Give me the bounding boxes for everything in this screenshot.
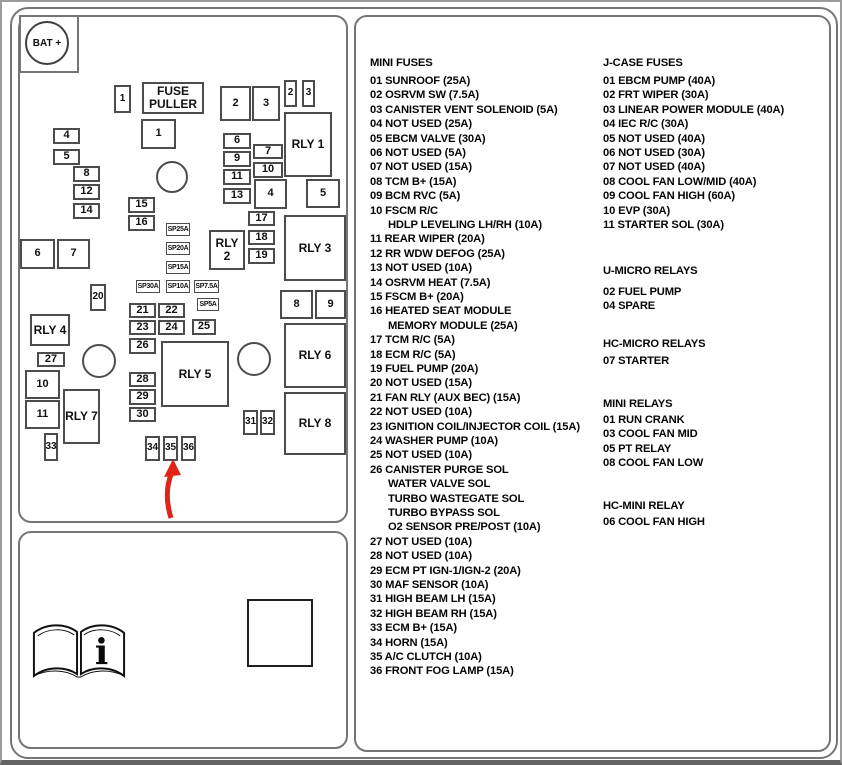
legend-item-mini-fuses: 19 FUEL PUMP (20A) xyxy=(370,363,478,375)
fuse-box-16-22: 16 xyxy=(128,215,155,231)
legend-item-mini-fuses: 16 HEATED SEAT MODULE xyxy=(370,305,511,317)
legend-item-mini-fuses: 25 NOT USED (10A) xyxy=(370,449,472,461)
fuse-box-14-12: 14 xyxy=(73,203,100,219)
red-arrow-icon xyxy=(152,454,196,524)
fuse-box-6-13: 6 xyxy=(223,133,251,149)
fuse-box-27-39: 27 xyxy=(37,352,65,367)
fuse-box-3-6: 3 xyxy=(302,80,315,107)
legend-item-mini-fuses: 04 NOT USED (25A) xyxy=(370,118,472,130)
legend-item-mini-fuses: 03 CANISTER VENT SOLENOID (5A) xyxy=(370,104,558,116)
relay-box-rly-4: RLY 4 xyxy=(30,314,70,346)
fuse-box-1: 1 xyxy=(141,119,176,149)
legend-item-mini-relays: 08 COOL FAN LOW xyxy=(603,457,703,469)
fuse-box-11-17: 11 xyxy=(223,169,251,185)
legend-item-mini-fuses: 17 TCM R/C (5A) xyxy=(370,334,455,346)
legend-item-mini-fuses: 24 WASHER PUMP (10A) xyxy=(370,435,498,447)
fuse-box-11-41: 11 xyxy=(25,400,60,429)
relay-box-rly-1: RLY 1 xyxy=(284,112,332,177)
legend-item-mini-fuses: 09 BCM RVC (5A) xyxy=(370,190,460,202)
legend-item-mini-fuses: 29 ECM PT IGN-1/IGN-2 (20A) xyxy=(370,565,521,577)
fuse-box-29-51: 29 xyxy=(129,389,156,405)
fuse-box-10-16: 10 xyxy=(253,162,283,178)
legend-item-mini-relays: 03 COOL FAN MID xyxy=(603,428,698,440)
legend-item-mini-fuses: TURBO BYPASS SOL xyxy=(388,507,500,519)
fuse-box-9-15: 9 xyxy=(223,151,251,167)
legend-item-mini-fuses: 28 NOT USED (10A) xyxy=(370,550,472,562)
legend-section-title-hc-micro-relays: HC-MICRO RELAYS xyxy=(603,338,705,350)
legend-item-j-case-fuses: 05 NOT USED (40A) xyxy=(603,133,705,145)
legend-item-mini-fuses: 12 RR WDW DEFOG (25A) xyxy=(370,248,505,260)
legend-item-mini-fuses: 06 NOT USED (5A) xyxy=(370,147,466,159)
fuse-box-20-37: 20 xyxy=(90,284,106,311)
fuse-box-18-24: 18 xyxy=(248,230,275,245)
legend-item-j-case-fuses: 11 STARTER SOL (30A) xyxy=(603,219,724,231)
fuse-box-4-19: 4 xyxy=(254,179,287,209)
legend-item-mini-fuses: O2 SENSOR PRE/POST (10A) xyxy=(388,521,540,533)
legend-section-title-mini-fuses: MINI FUSES xyxy=(370,57,433,69)
legend-item-mini-fuses: 01 SUNROOF (25A) xyxy=(370,75,470,87)
legend-item-mini-fuses: TURBO WASTEGATE SOL xyxy=(388,493,524,505)
fuse-box-8-54: 8 xyxy=(280,290,313,319)
fuse-box-9-55: 9 xyxy=(315,290,346,319)
fuse-box-4-8: 4 xyxy=(53,128,80,144)
relay-box-rly-6: RLY 6 xyxy=(284,323,346,388)
manual-page: BAT + 1FUSE PULLER12323RLY 1458121467910… xyxy=(0,0,842,765)
legend-item-mini-fuses: 31 HIGH BEAM LH (15A) xyxy=(370,593,496,605)
fuse-box-26-49: 26 xyxy=(129,338,156,354)
legend-item-u-micro-relays: 04 SPARE xyxy=(603,300,655,312)
legend-item-mini-relays: 01 RUN CRANK xyxy=(603,414,685,426)
spare-fuse-sp5a: SP5A xyxy=(197,298,219,311)
battery-terminal-label: BAT + xyxy=(33,38,61,49)
mounting-hole xyxy=(156,161,188,193)
legend-item-mini-fuses: 05 EBCM VALVE (30A) xyxy=(370,133,485,145)
battery-terminal-icon: BAT + xyxy=(25,21,69,65)
relay-box-rly-5: RLY 5 xyxy=(161,341,229,407)
fuse-box-31-58: 31 xyxy=(243,410,258,435)
fuse-box-17-23: 17 xyxy=(248,211,275,226)
legend-item-j-case-fuses: 04 IEC R/C (30A) xyxy=(603,118,688,130)
legend-item-mini-fuses: 26 CANISTER PURGE SOL xyxy=(370,464,509,476)
svg-text:i: i xyxy=(95,632,108,673)
fuse-box-28-50: 28 xyxy=(129,372,156,387)
fuse-box-6-35: 6 xyxy=(20,239,55,269)
fuse-box-15-21: 15 xyxy=(128,197,155,213)
spare-fuse-sp20a: SP20A xyxy=(166,242,190,255)
legend-item-mini-fuses: 34 HORN (15A) xyxy=(370,637,448,649)
fuse-box-7-14: 7 xyxy=(253,144,283,159)
fuse-box-21-44: 21 xyxy=(129,303,156,318)
legend-item-j-case-fuses: 02 FRT WIPER (30A) xyxy=(603,89,708,101)
legend-item-mini-fuses: 30 MAF SENSOR (10A) xyxy=(370,579,488,591)
legend-item-mini-fuses: MEMORY MODULE (25A) xyxy=(388,320,518,332)
legend-item-mini-fuses: 07 NOT USED (15A) xyxy=(370,161,472,173)
spare-fuse-sp25a: SP25A xyxy=(166,223,190,236)
relay-box-rly-8: RLY 8 xyxy=(284,392,346,455)
legend-item-u-micro-relays: 02 FUEL PUMP xyxy=(603,286,681,298)
legend-item-mini-fuses: 36 FRONT FOG LAMP (15A) xyxy=(370,665,514,677)
legend-item-mini-fuses: 11 REAR WIPER (20A) xyxy=(370,233,485,245)
legend-item-mini-relays: 05 PT RELAY xyxy=(603,443,671,455)
legend-item-mini-fuses: 27 NOT USED (10A) xyxy=(370,536,472,548)
legend-item-mini-fuses: 18 ECM R/C (5A) xyxy=(370,349,455,361)
legend-item-j-case-fuses: 08 COOL FAN LOW/MID (40A) xyxy=(603,176,756,188)
fuse-box-2-3: 2 xyxy=(220,86,251,121)
spare-fuse-sp10a: SP10A xyxy=(166,280,190,293)
mounting-hole xyxy=(237,342,271,376)
fuse-box-23-46: 23 xyxy=(129,320,156,335)
legend-section-title-j-case-fuses: J-CASE FUSES xyxy=(603,57,683,69)
fuse-box-5-20: 5 xyxy=(306,179,340,208)
fuse-box-32-59: 32 xyxy=(260,410,275,435)
legend-item-j-case-fuses: 03 LINEAR POWER MODULE (40A) xyxy=(603,104,784,116)
legend-section-title-u-micro-relays: U-MICRO RELAYS xyxy=(603,265,697,277)
legend-item-j-case-fuses: 06 NOT USED (30A) xyxy=(603,147,705,159)
legend-item-mini-fuses: 21 FAN RLY (AUX BEC) (15A) xyxy=(370,392,520,404)
legend-item-j-case-fuses: 10 EVP (30A) xyxy=(603,205,670,217)
legend-square xyxy=(247,599,313,667)
legend-item-mini-fuses: 15 FSCM B+ (20A) xyxy=(370,291,464,303)
fuse-box-22-45: 22 xyxy=(158,303,185,318)
legend-section-title-hc-mini-relay: HC-MINI RELAY xyxy=(603,500,685,512)
legend-item-mini-fuses: 02 OSRVM SW (7.5A) xyxy=(370,89,479,101)
legend-item-mini-fuses: 33 ECM B+ (15A) xyxy=(370,622,457,634)
fuse-box-1-small: 1 xyxy=(114,85,131,113)
legend-item-mini-fuses: 08 TCM B+ (15A) xyxy=(370,176,456,188)
fuse-box-5-9: 5 xyxy=(53,149,80,165)
fuse-box-10-40: 10 xyxy=(25,370,60,399)
fuse-box-12-11: 12 xyxy=(73,184,100,200)
owners-manual-icon: i xyxy=(30,620,128,682)
fuse-box-2-5: 2 xyxy=(284,80,297,107)
fuse-box-3-4: 3 xyxy=(252,86,280,121)
legend-item-mini-fuses: 23 IGNITION COIL/INJECTOR COIL (15A) xyxy=(370,421,580,433)
spare-fuse-sp15a: SP15A xyxy=(166,261,190,274)
fuse-box-19-25: 19 xyxy=(248,248,275,264)
legend-item-hc-micro-relays: 07 STARTER xyxy=(603,355,669,367)
relay-box-rly-3: RLY 3 xyxy=(284,215,346,281)
legend-item-j-case-fuses: 01 EBCM PUMP (40A) xyxy=(603,75,715,87)
relay-box-rly-2: RLY 2 xyxy=(209,230,245,270)
legend-item-mini-fuses: 32 HIGH BEAM RH (15A) xyxy=(370,608,497,620)
relay-box-rly-7: RLY 7 xyxy=(63,389,100,444)
legend-item-mini-fuses: 22 NOT USED (10A) xyxy=(370,406,472,418)
fuse-box-33-43: 33 xyxy=(44,433,58,461)
fuse-box-13-18: 13 xyxy=(223,188,251,204)
legend-item-j-case-fuses: 07 NOT USED (40A) xyxy=(603,161,705,173)
legend-layer: MINI FUSES01 SUNROOF (25A)02 OSRVM SW (7… xyxy=(2,2,842,765)
fuse-box-8-10: 8 xyxy=(73,166,100,182)
fuse-box-25-48: 25 xyxy=(192,319,216,335)
mounting-hole xyxy=(82,344,116,378)
fuse-box-7-36: 7 xyxy=(57,239,90,269)
legend-item-mini-fuses: HDLP LEVELING LH/RH (10A) xyxy=(388,219,542,231)
battery-terminal-box: BAT + xyxy=(19,15,79,73)
legend-item-mini-fuses: 13 NOT USED (10A) xyxy=(370,262,472,274)
spare-fuse-sp30a: SP30A xyxy=(136,280,160,293)
legend-item-mini-fuses: 35 A/C CLUTCH (10A) xyxy=(370,651,482,663)
fuse-box-30-52: 30 xyxy=(129,407,156,422)
fuse-box-24-47: 24 xyxy=(158,320,185,335)
legend-item-mini-fuses: 14 OSRVM HEAT (7.5A) xyxy=(370,277,490,289)
spare-fuse-sp7-5a: SP7.5A xyxy=(194,280,219,293)
legend-section-title-mini-relays: MINI RELAYS xyxy=(603,398,672,410)
legend-item-mini-fuses: WATER VALVE SOL xyxy=(388,478,490,490)
fuse-puller: FUSE PULLER xyxy=(142,82,204,114)
legend-item-hc-mini-relay: 06 COOL FAN HIGH xyxy=(603,516,705,528)
legend-item-mini-fuses: 10 FSCM R/C xyxy=(370,205,438,217)
legend-item-mini-fuses: 20 NOT USED (15A) xyxy=(370,377,472,389)
legend-item-j-case-fuses: 09 COOL FAN HIGH (60A) xyxy=(603,190,735,202)
